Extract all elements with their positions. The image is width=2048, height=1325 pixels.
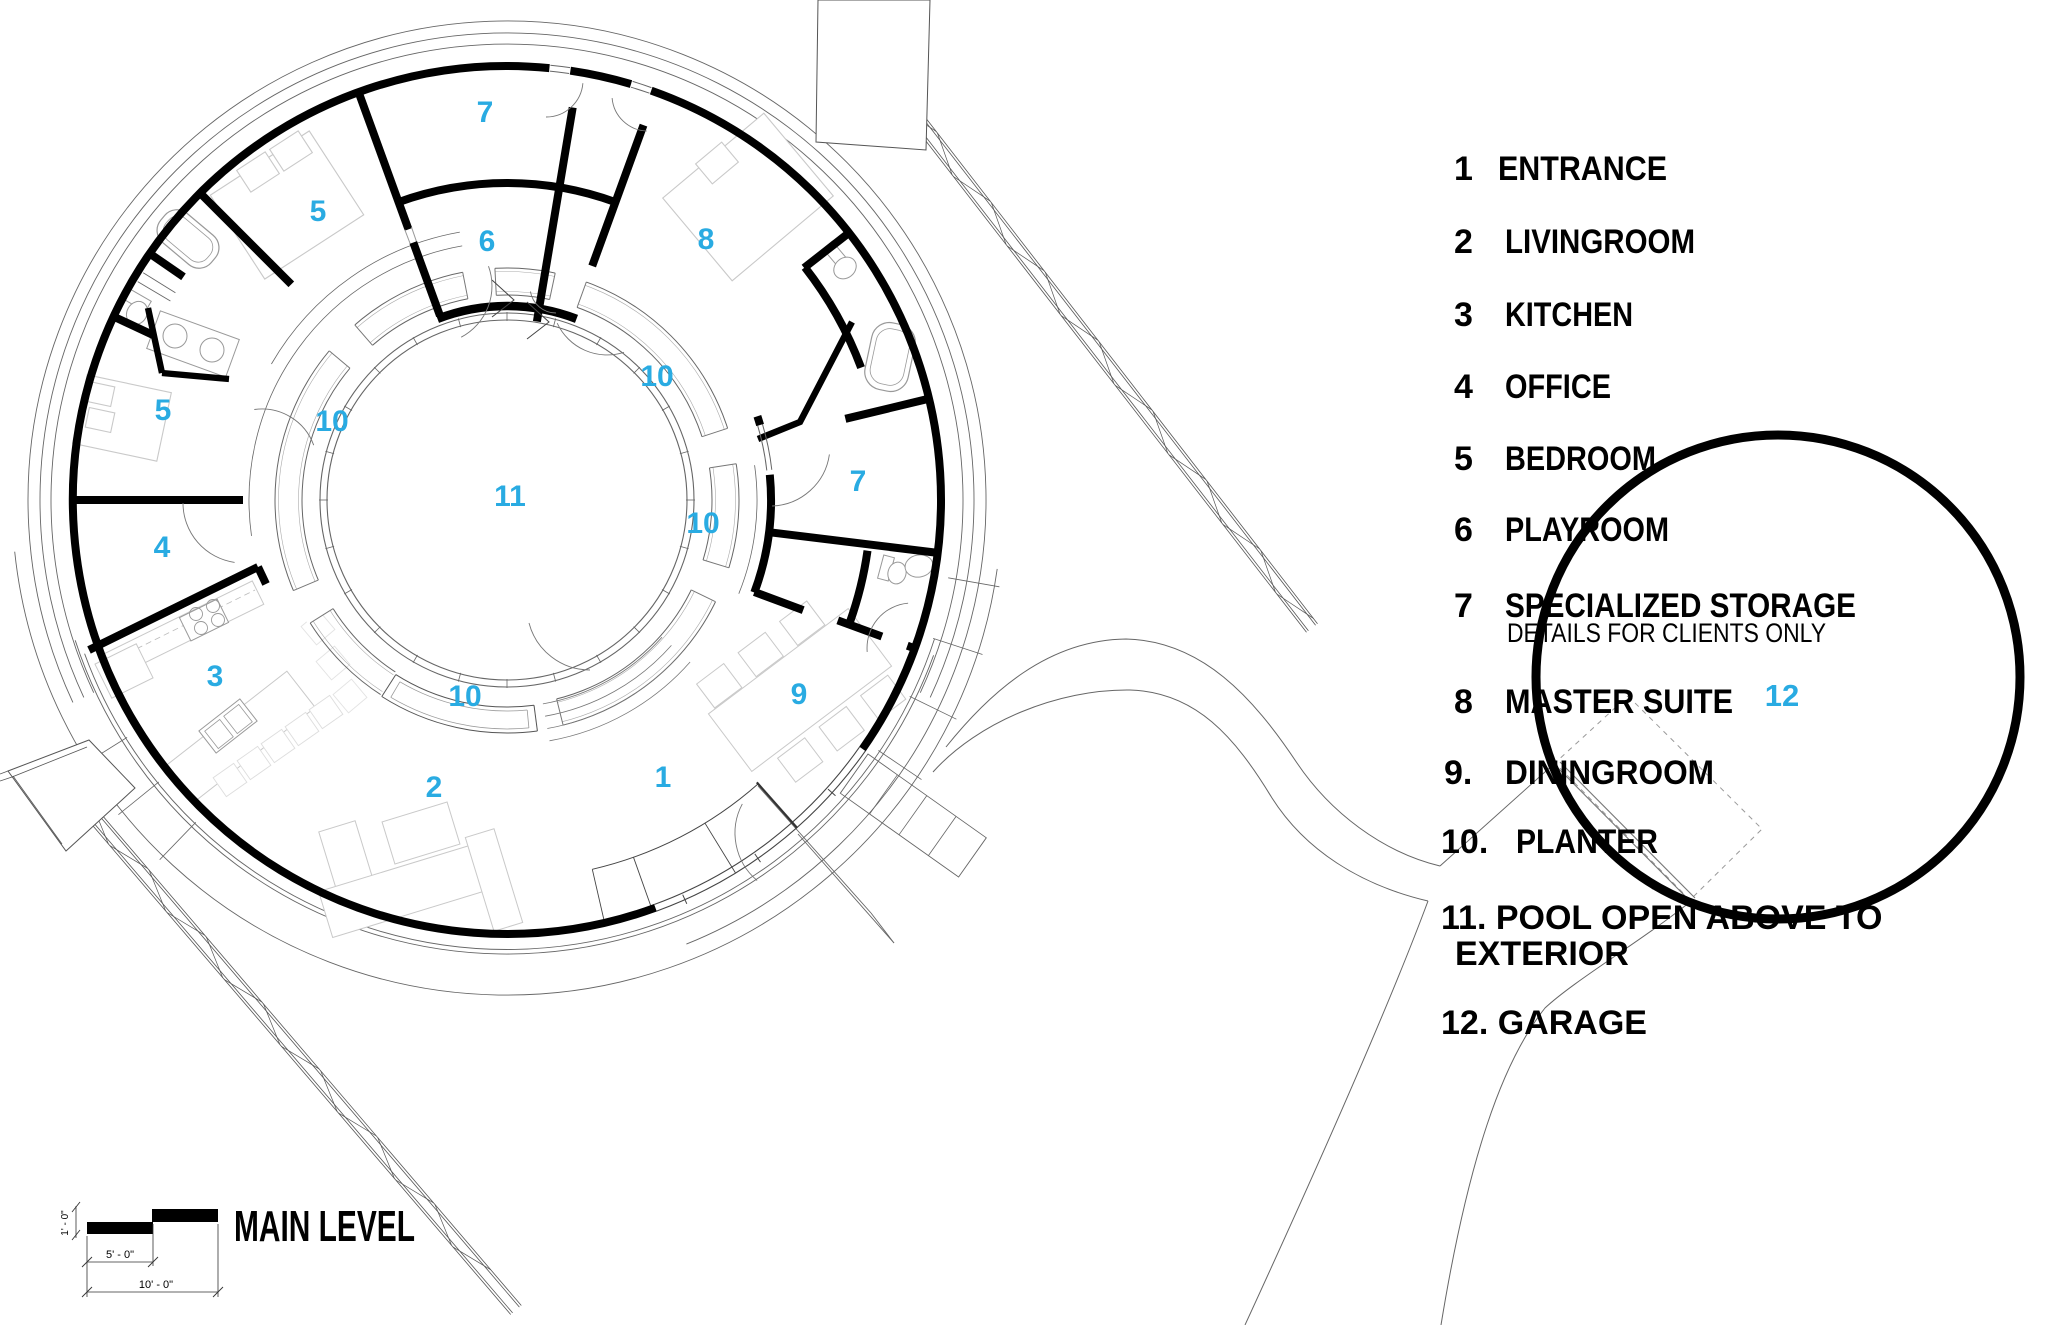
svg-text:2: 2	[1454, 223, 1473, 261]
svg-text:3: 3	[207, 660, 224, 693]
svg-text:7: 7	[850, 465, 867, 498]
svg-text:11: 11	[494, 480, 526, 513]
svg-text:10' - 0": 10' - 0"	[139, 1279, 173, 1291]
svg-text:10: 10	[640, 360, 673, 393]
svg-text:MAIN LEVEL: MAIN LEVEL	[234, 1202, 415, 1251]
svg-text:8: 8	[1454, 683, 1473, 721]
svg-text:5: 5	[1454, 440, 1473, 478]
svg-text:5' - 0": 5' - 0"	[106, 1249, 134, 1261]
svg-text:5: 5	[155, 394, 172, 427]
svg-text:12. GARAGE: 12. GARAGE	[1441, 1004, 1647, 1042]
svg-text:PLANTER: PLANTER	[1516, 823, 1658, 861]
svg-text:4: 4	[154, 531, 171, 564]
svg-text:DININGROOM: DININGROOM	[1505, 754, 1714, 792]
svg-text:OFFICE: OFFICE	[1505, 368, 1611, 406]
svg-text:10: 10	[448, 680, 481, 713]
svg-text:PLAYROOM: PLAYROOM	[1505, 511, 1669, 549]
svg-text:5: 5	[310, 195, 327, 228]
svg-text:MASTER SUITE: MASTER SUITE	[1505, 683, 1733, 721]
svg-text:10: 10	[686, 507, 719, 540]
svg-text:KITCHEN: KITCHEN	[1505, 296, 1633, 334]
svg-text:11. POOL OPEN ABOVE TO: 11. POOL OPEN ABOVE TO	[1441, 899, 1883, 937]
svg-text:8: 8	[698, 223, 715, 256]
svg-text:BEDROOM: BEDROOM	[1505, 440, 1656, 478]
svg-text:9: 9	[791, 678, 808, 711]
svg-text:EXTERIOR: EXTERIOR	[1455, 935, 1629, 973]
svg-text:7: 7	[477, 96, 494, 129]
svg-text:9.: 9.	[1444, 754, 1472, 792]
svg-text:10: 10	[315, 405, 348, 438]
svg-text:12: 12	[1765, 678, 1799, 713]
svg-text:1: 1	[655, 761, 672, 794]
svg-text:ENTRANCE: ENTRANCE	[1498, 150, 1667, 188]
svg-text:LIVINGROOM: LIVINGROOM	[1505, 223, 1695, 261]
svg-text:10.: 10.	[1441, 823, 1488, 861]
svg-text:4: 4	[1454, 368, 1473, 406]
svg-text:DETAILS FOR CLIENTS ONLY: DETAILS FOR CLIENTS ONLY	[1507, 618, 1826, 648]
svg-text:3: 3	[1454, 296, 1473, 334]
svg-text:6: 6	[479, 225, 496, 258]
svg-text:6: 6	[1454, 511, 1473, 549]
svg-text:2: 2	[426, 771, 443, 804]
svg-text:1' - 0": 1' - 0"	[60, 1210, 71, 1236]
svg-text:7: 7	[1454, 587, 1473, 625]
svg-text:1: 1	[1454, 150, 1473, 188]
